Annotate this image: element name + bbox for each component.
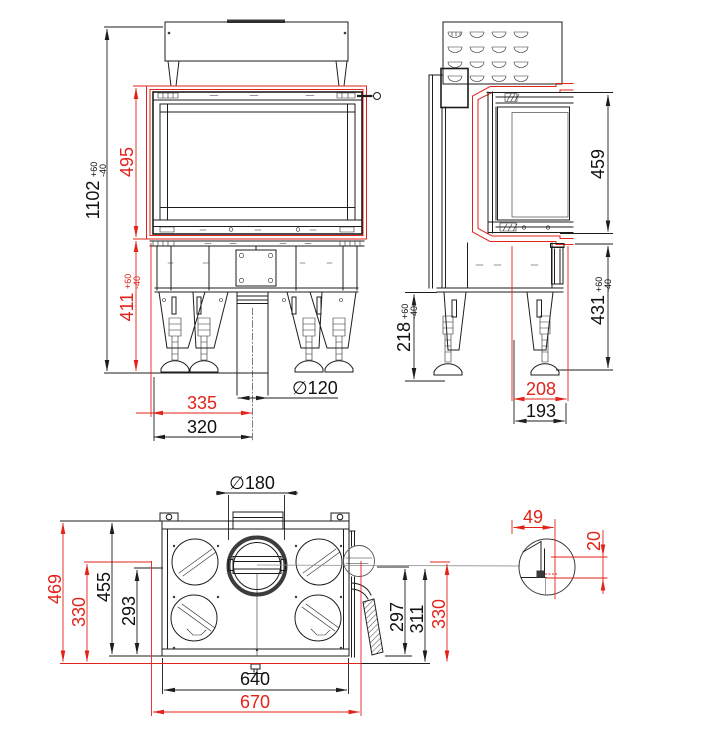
corner-edge-lines	[346, 558, 372, 564]
rear-stub-box	[441, 69, 468, 108]
front-frame-inner	[150, 90, 363, 236]
leg-bolt	[220, 299, 223, 302]
side-view	[429, 22, 573, 375]
dim-tol-minus: -40	[409, 306, 419, 319]
dim-bottom-depth-side-glass: 330	[429, 564, 449, 662]
screw-dot	[173, 647, 175, 649]
dim-value: 459	[588, 149, 608, 179]
front-frame-outer	[147, 86, 367, 239]
detail-view	[519, 539, 575, 596]
firebox-door	[153, 92, 362, 234]
front-view	[147, 20, 381, 441]
dim-value: 311	[407, 605, 427, 634]
side-glass	[512, 113, 568, 218]
dim-value: 469	[45, 574, 65, 604]
side-extension-lines	[405, 93, 613, 425]
dim-value: 455	[94, 572, 114, 602]
dim-side-leg-height: 218 +60 -40	[394, 295, 419, 380]
leg-bolt	[283, 299, 286, 302]
screw-dot	[256, 649, 258, 651]
handle-bar	[363, 599, 383, 655]
opening-circle	[171, 595, 217, 641]
dim-bottom-width-total: 670	[153, 692, 360, 712]
dim-value: ∅180	[229, 473, 275, 493]
side-door-lines	[487, 92, 573, 233]
dim-bottom-depth-body: 455	[94, 523, 114, 654]
dim-value: 670	[240, 692, 270, 712]
hood-screw	[168, 32, 171, 35]
screw-dot	[173, 596, 175, 598]
screw-dot	[340, 647, 342, 649]
fireplace-insert-drawing: 1102 +60 -40 495 411 +60 -40 335 320 ∅12…	[0, 0, 704, 748]
side-legs	[444, 292, 553, 350]
side-feet-adjusters	[443, 316, 550, 362]
dim-value: 330	[69, 597, 89, 627]
convection-openings	[171, 539, 342, 641]
technical-drawing-page: 1102 +60 -40 495 411 +60 -40 335 320 ∅12…	[0, 0, 704, 748]
vent-panel	[443, 22, 562, 84]
detail-circle	[519, 539, 575, 595]
opening-circle	[295, 595, 341, 641]
hood-screw	[344, 32, 347, 35]
screw-dot	[340, 545, 342, 547]
dim-tol-minus: -40	[132, 276, 142, 289]
side-glass-frame	[498, 107, 570, 220]
side-cylinder	[551, 244, 565, 285]
base-structure	[150, 241, 364, 292]
dim-side-depth-base: 193	[516, 401, 565, 421]
dim-value: 411	[117, 293, 137, 322]
door-handle-knob	[374, 93, 381, 100]
dim-bottom-depth-glass: 330	[69, 564, 89, 662]
dim-value: 495	[117, 147, 137, 177]
dim-tol-minus: -40	[98, 164, 108, 177]
mounting-lug-hole	[337, 514, 343, 520]
dim-value: 335	[187, 393, 217, 413]
leg-bolt	[340, 299, 343, 302]
side-feet-domes	[434, 364, 559, 375]
dim-bottom-depth-edge: 311	[407, 569, 427, 662]
dim-value: 297	[387, 602, 407, 632]
door-frame-lines	[153, 100, 362, 227]
base-details	[153, 241, 360, 263]
dim-detail-corner-width: 49	[514, 507, 554, 528]
junction-box-bolt	[239, 253, 243, 257]
dim-side-glass-height: 459	[588, 95, 608, 232]
vent-louvers	[448, 32, 528, 82]
dim-bottom-depth-handle: 297	[387, 569, 407, 654]
screw-dot	[295, 596, 297, 598]
dim-bottom-flue-diameter: ∅180	[216, 473, 298, 493]
junction-box-bolt	[268, 253, 272, 257]
junction-box-bolt	[239, 278, 243, 282]
opening-circle	[296, 539, 342, 585]
dim-value: 49	[523, 507, 543, 527]
screw-dot	[340, 596, 342, 598]
dim-value: 193	[526, 401, 556, 421]
dim-front-understructure-height: 411 +60 -40	[117, 241, 142, 371]
screw-dot	[217, 596, 219, 598]
bottom-view	[160, 512, 520, 674]
hood-outline	[165, 22, 348, 86]
screw-dot	[173, 545, 175, 547]
dim-front-flue-offset-inner: 320	[154, 417, 252, 437]
detail-step	[537, 571, 545, 578]
dim-value: 320	[187, 417, 217, 437]
dim-value: 1102	[83, 181, 103, 220]
leg-bolt	[163, 299, 166, 302]
dim-side-lower-height: 431 +60 -40	[588, 246, 613, 368]
junction-box-bolt	[268, 278, 272, 282]
dim-value: 330	[429, 599, 449, 629]
door-hardware	[158, 93, 355, 232]
dim-front-total-height: 1102 +60 -40	[83, 29, 108, 371]
dim-value: 431	[588, 295, 608, 325]
dim-bottom-depth-inner: 293	[119, 570, 139, 654]
dim-value: ∅120	[292, 378, 338, 398]
dim-tol-minus: -40	[603, 279, 613, 292]
dim-front-glass-frame-height: 495	[117, 88, 137, 237]
dim-value: 293	[119, 596, 139, 626]
door-screw	[296, 228, 300, 232]
screw-dot	[217, 545, 219, 547]
bottom-extension-lines	[60, 495, 430, 694]
dim-bottom-depth-total: 469	[45, 523, 65, 662]
front-feet-domes	[161, 361, 353, 372]
side-door-hatch	[500, 94, 519, 232]
dim-value: 640	[240, 669, 270, 689]
dim-value: 218	[394, 322, 414, 352]
detail-callout-circle	[344, 546, 375, 577]
dim-value: 208	[526, 379, 556, 399]
dim-value: 20	[584, 531, 604, 551]
mounting-lug-hole	[166, 514, 172, 520]
door-screw	[229, 228, 233, 232]
side-base	[437, 243, 563, 292]
screw-dot	[295, 545, 297, 547]
dim-side-depth-frame: 208	[514, 379, 567, 399]
opening-circle	[172, 539, 218, 585]
dim-front-flue-offset-outer: 335	[152, 393, 252, 413]
dim-bottom-width-body: 640	[164, 669, 347, 690]
